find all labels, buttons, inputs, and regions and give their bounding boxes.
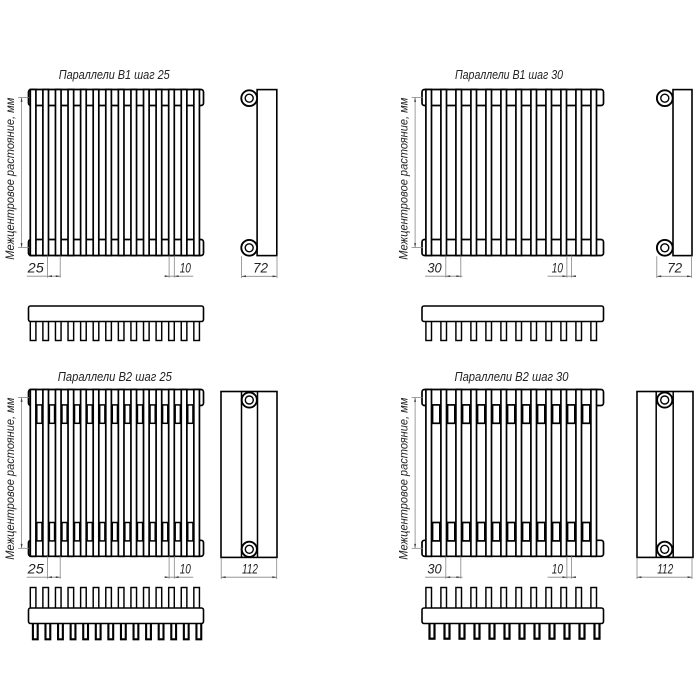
svg-text:Параллели В1 шаг 30: Параллели В1 шаг 30 — [455, 67, 564, 82]
svg-text:112: 112 — [242, 561, 258, 577]
svg-text:Межцентровое растояние, мм: Межцентровое растояние, мм — [397, 98, 411, 260]
svg-text:25: 25 — [27, 561, 44, 577]
svg-text:10: 10 — [180, 561, 191, 577]
svg-text:Межцентровое растояние, мм: Межцентровое растояние, мм — [3, 98, 17, 260]
svg-text:10: 10 — [180, 259, 191, 275]
svg-text:Параллели В2 шаг 25: Параллели В2 шаг 25 — [58, 369, 173, 384]
svg-text:112: 112 — [657, 561, 673, 577]
svg-text:Межцентровое растояние, мм: Межцентровое растояние, мм — [397, 398, 411, 560]
svg-text:25: 25 — [27, 259, 44, 275]
svg-text:72: 72 — [667, 259, 682, 275]
svg-text:72: 72 — [253, 259, 268, 275]
svg-text:Межцентровое растояние, мм: Межцентровое растояние, мм — [3, 398, 17, 560]
svg-text:10: 10 — [552, 259, 563, 275]
svg-text:30: 30 — [427, 561, 441, 577]
svg-text:10: 10 — [552, 561, 563, 577]
svg-text:Параллели В1 шаг 25: Параллели В1 шаг 25 — [59, 67, 171, 82]
svg-text:30: 30 — [427, 259, 441, 275]
svg-text:Параллели В2 шаг 30: Параллели В2 шаг 30 — [455, 369, 570, 384]
